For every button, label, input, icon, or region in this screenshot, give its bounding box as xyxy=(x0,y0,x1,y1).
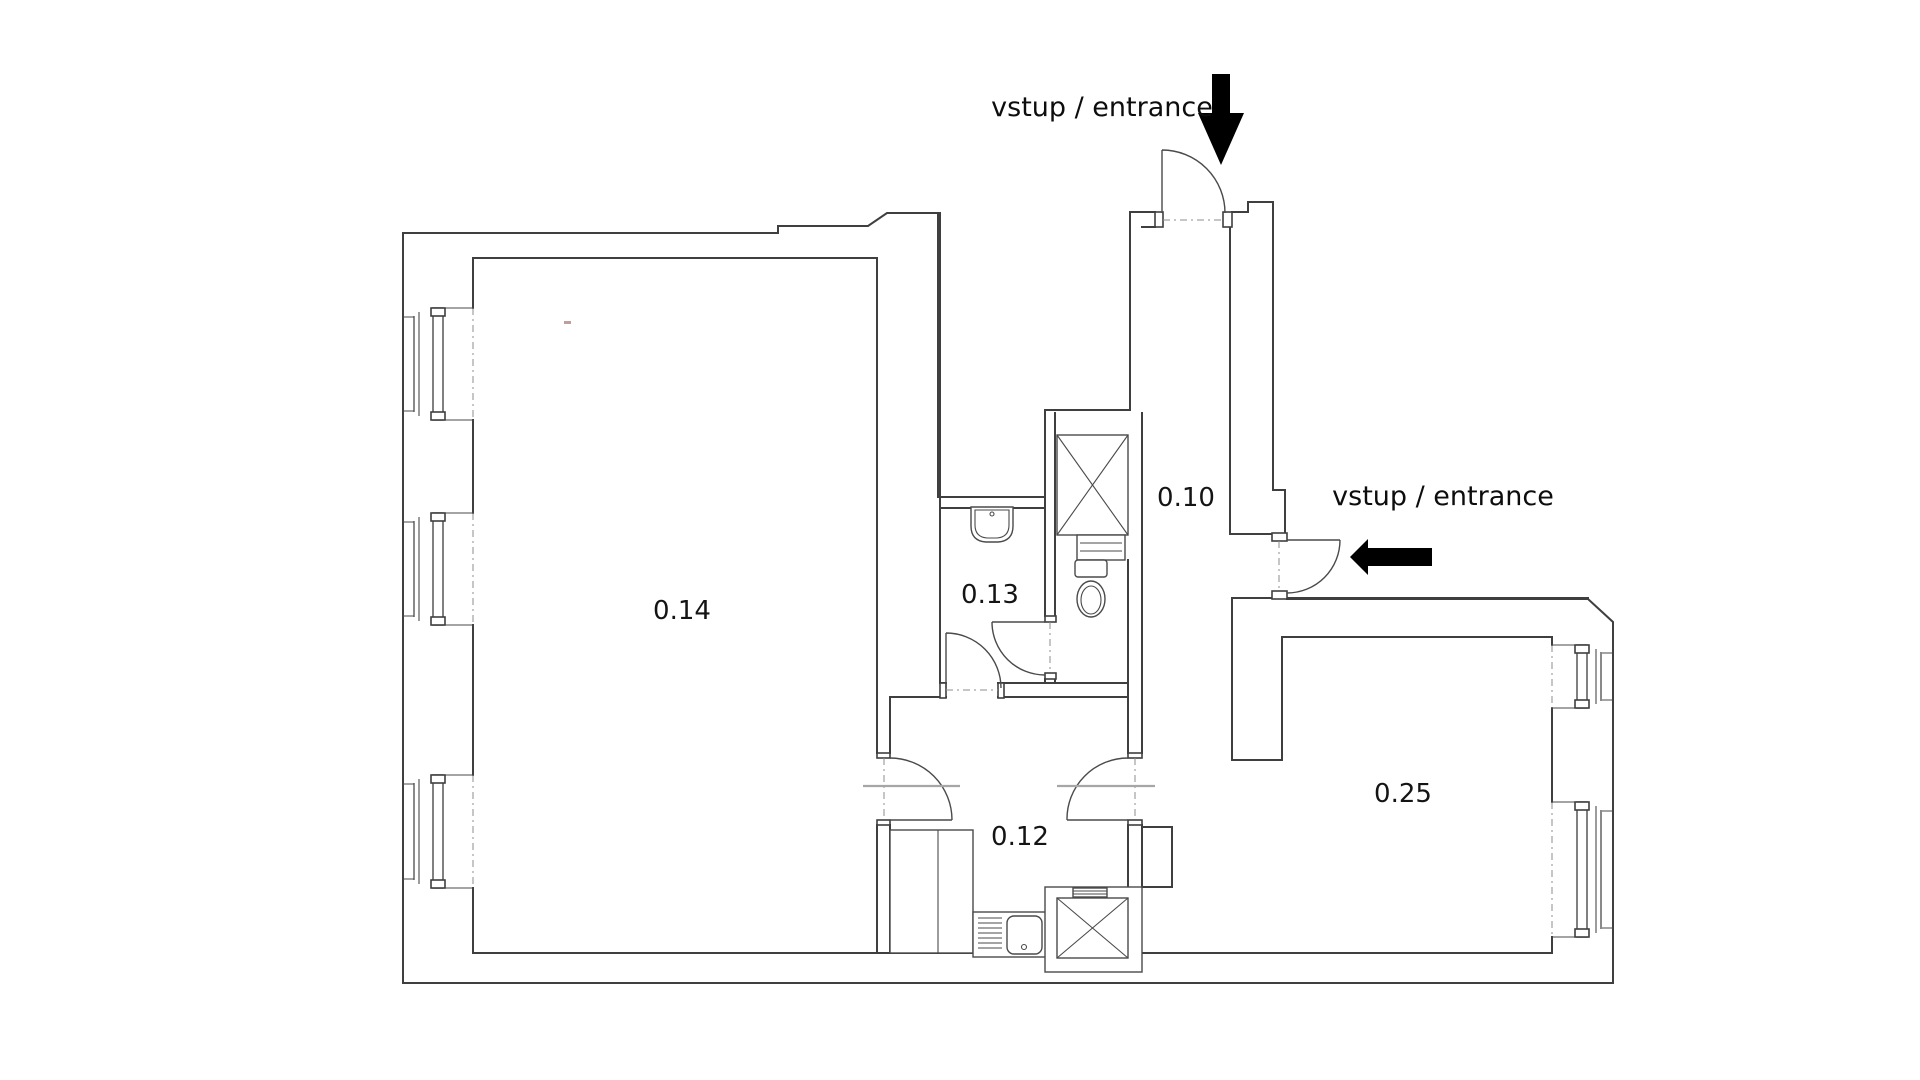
window-right-1 xyxy=(1552,645,1613,708)
kitchen-sink-icon xyxy=(973,912,1047,957)
door-entrance-right xyxy=(1287,540,1340,593)
room-label-0-12: 0.12 xyxy=(991,822,1049,852)
floor-plan-drawing: vstup / entrance vstup / entrance 0.10 0… xyxy=(0,0,1920,1080)
toilet-icon xyxy=(1075,560,1107,617)
jamb xyxy=(1045,673,1056,679)
artifact-dot xyxy=(564,321,571,324)
jamb xyxy=(1272,533,1287,541)
door-entrance-top xyxy=(1162,150,1225,213)
door-bathroom xyxy=(946,633,1001,688)
room-label-0-25: 0.25 xyxy=(1374,779,1432,809)
door-hall-corridor xyxy=(1067,758,1128,820)
kitchen-counter-icon xyxy=(890,830,973,953)
jamb xyxy=(1128,820,1142,825)
jamb xyxy=(1155,212,1163,227)
room-label-0-10: 0.10 xyxy=(1157,483,1215,513)
entrance-top-label: vstup / entrance xyxy=(991,92,1213,123)
floor-plan-page: vstup / entrance vstup / entrance 0.10 0… xyxy=(0,0,1920,1080)
door-wc xyxy=(992,622,1045,675)
windows-left xyxy=(403,308,473,888)
bath-south-wall xyxy=(890,683,1128,697)
shaft-bottom-icon xyxy=(1045,887,1142,972)
room-label-0-13: 0.13 xyxy=(961,580,1019,610)
shaft-top-icon xyxy=(1057,435,1128,560)
entrance-right-label: vstup / entrance xyxy=(1332,481,1554,512)
door-room014 xyxy=(890,758,952,820)
room-label-0-14: 0.14 xyxy=(653,596,711,626)
corridor-east-interior xyxy=(1230,227,1272,534)
washbasin-icon xyxy=(971,507,1013,542)
jamb xyxy=(1223,212,1232,227)
entrance-arrow-left-icon xyxy=(1350,539,1432,575)
window-left-2 xyxy=(403,513,473,625)
jamb xyxy=(877,753,890,758)
outer-wall-east-upper xyxy=(1232,202,1285,536)
wall-block-south xyxy=(1142,827,1172,887)
jamb xyxy=(877,820,890,825)
window-left-3 xyxy=(403,775,473,888)
jamb xyxy=(1128,753,1142,758)
jamb xyxy=(1272,591,1287,599)
window-left-1 xyxy=(403,308,473,420)
l-shaped-wall xyxy=(1232,598,1551,760)
jamb xyxy=(940,683,946,698)
jamb xyxy=(1045,616,1056,622)
windows-right xyxy=(1552,645,1613,937)
window-right-2 xyxy=(1552,802,1613,937)
